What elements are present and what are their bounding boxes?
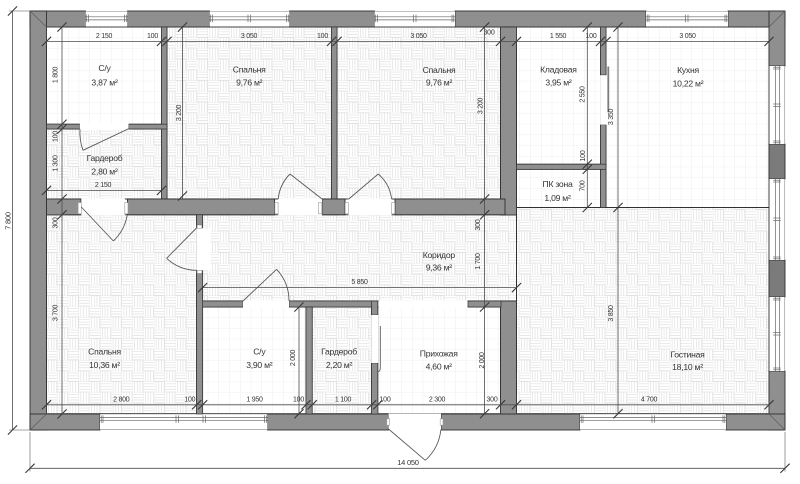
svg-text:7 800: 7 800	[3, 212, 12, 230]
svg-text:ПК зона: ПК зона	[543, 179, 573, 189]
svg-text:10,36 м²: 10,36 м²	[89, 360, 120, 370]
svg-text:9,76 м²: 9,76 м²	[236, 78, 263, 88]
svg-text:1 100: 1 100	[335, 397, 352, 404]
svg-text:4 700: 4 700	[641, 397, 658, 404]
svg-text:100: 100	[147, 33, 158, 40]
svg-text:100: 100	[53, 131, 60, 142]
svg-text:18,10 м²: 18,10 м²	[672, 362, 703, 372]
svg-text:3 050: 3 050	[241, 33, 258, 40]
svg-text:1 950: 1 950	[246, 397, 263, 404]
svg-text:Коридор: Коридор	[423, 250, 456, 260]
svg-text:9,76 м²: 9,76 м²	[426, 78, 453, 88]
svg-text:Прихожая: Прихожая	[420, 349, 458, 359]
svg-text:2,80 м²: 2,80 м²	[91, 167, 118, 177]
svg-text:3,95 м²: 3,95 м²	[545, 77, 572, 87]
svg-text:100: 100	[293, 397, 304, 404]
svg-text:9,36 м²: 9,36 м²	[426, 263, 453, 273]
svg-text:2 000: 2 000	[290, 350, 297, 367]
svg-text:300: 300	[475, 219, 482, 230]
svg-text:Кладовая: Кладовая	[540, 65, 577, 75]
svg-text:1 300: 1 300	[53, 155, 60, 172]
svg-text:100: 100	[580, 150, 587, 161]
svg-text:700: 700	[580, 180, 587, 191]
svg-text:10,22 м²: 10,22 м²	[673, 79, 704, 89]
svg-text:Спальня: Спальня	[233, 65, 266, 75]
svg-text:3,90 м²: 3,90 м²	[246, 360, 273, 370]
svg-text:Спальня: Спальня	[88, 347, 121, 357]
svg-text:Спальня: Спальня	[423, 65, 456, 75]
svg-text:2 150: 2 150	[95, 182, 112, 189]
svg-text:2 300: 2 300	[429, 397, 446, 404]
svg-text:С/у: С/у	[98, 63, 111, 73]
svg-text:2 000: 2 000	[479, 352, 486, 369]
svg-text:1,09 м²: 1,09 м²	[544, 193, 571, 203]
svg-text:14 050: 14 050	[397, 458, 419, 467]
svg-text:100: 100	[184, 397, 195, 404]
svg-text:Гардероб: Гардероб	[87, 153, 123, 163]
svg-text:2 800: 2 800	[113, 397, 130, 404]
svg-text:3,87 м²: 3,87 м²	[91, 77, 118, 87]
svg-text:3 200: 3 200	[176, 105, 183, 122]
svg-text:Кухня: Кухня	[677, 65, 699, 75]
svg-text:300: 300	[53, 217, 60, 228]
svg-text:3 700: 3 700	[53, 305, 60, 322]
svg-text:Гостиная: Гостиная	[670, 349, 705, 359]
svg-text:2 150: 2 150	[96, 33, 113, 40]
svg-text:2 550: 2 550	[580, 86, 587, 103]
svg-text:1 700: 1 700	[475, 253, 482, 270]
svg-text:2,20 м²: 2,20 м²	[326, 360, 353, 370]
svg-text:300: 300	[487, 397, 498, 404]
svg-text:300: 300	[484, 30, 495, 37]
svg-text:3 850: 3 850	[608, 305, 615, 322]
svg-text:3 350: 3 350	[608, 109, 615, 126]
svg-text:1 800: 1 800	[53, 67, 60, 84]
svg-text:Гардероб: Гардероб	[321, 347, 357, 357]
svg-text:4,60 м²: 4,60 м²	[426, 361, 453, 371]
svg-text:3 200: 3 200	[478, 98, 485, 115]
svg-text:3 050: 3 050	[410, 33, 427, 40]
svg-text:3 050: 3 050	[679, 33, 696, 40]
svg-text:5 850: 5 850	[351, 279, 368, 286]
svg-text:100: 100	[380, 397, 391, 404]
svg-text:100: 100	[317, 33, 328, 40]
svg-text:1 550: 1 550	[550, 33, 567, 40]
svg-text:С/у: С/у	[253, 347, 266, 357]
